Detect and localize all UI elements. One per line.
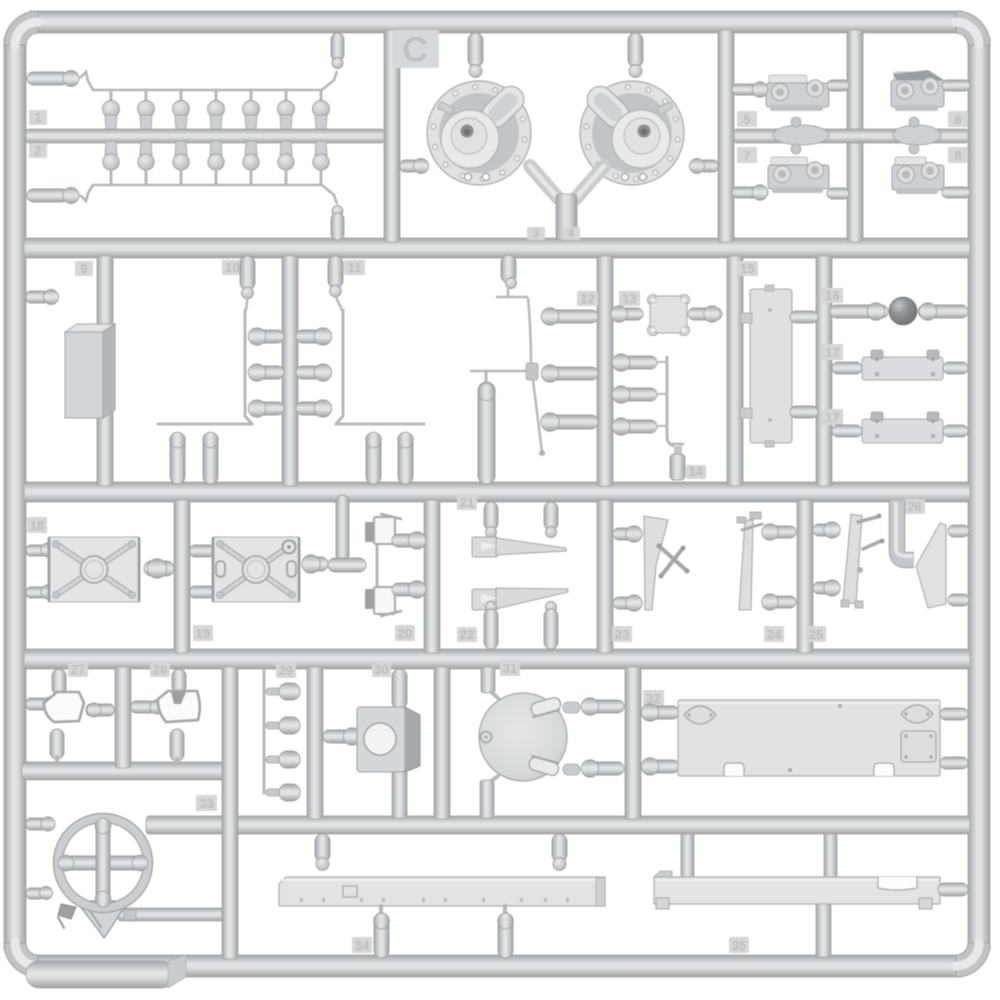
svg-text:20: 20	[398, 626, 412, 641]
svg-text:2: 2	[34, 143, 41, 158]
svg-text:12: 12	[580, 291, 594, 306]
svg-text:19: 19	[196, 626, 210, 641]
svg-text:24: 24	[767, 627, 782, 642]
svg-text:30: 30	[374, 662, 388, 677]
svg-text:7: 7	[743, 148, 750, 163]
svg-text:14: 14	[689, 464, 704, 479]
svg-text:15: 15	[740, 261, 754, 276]
svg-text:26: 26	[907, 499, 921, 514]
svg-text:5: 5	[743, 112, 750, 127]
svg-text:1: 1	[34, 110, 41, 125]
svg-text:C: C	[403, 31, 428, 69]
svg-text:6: 6	[954, 112, 961, 127]
svg-text:18: 18	[30, 518, 44, 533]
svg-text:35: 35	[732, 938, 746, 953]
svg-text:9: 9	[80, 261, 87, 276]
svg-text:4: 4	[568, 226, 575, 240]
svg-text:34: 34	[355, 938, 370, 953]
svg-text:25: 25	[809, 627, 823, 642]
svg-text:21: 21	[460, 495, 474, 510]
svg-text:17: 17	[825, 345, 839, 360]
svg-text:8: 8	[954, 148, 961, 163]
svg-text:27: 27	[71, 662, 85, 677]
svg-text:31: 31	[503, 661, 517, 676]
svg-text:17: 17	[825, 410, 839, 425]
svg-text:22: 22	[460, 627, 474, 642]
svg-text:11: 11	[348, 260, 362, 275]
svg-text:33: 33	[199, 796, 213, 811]
svg-text:16: 16	[825, 288, 839, 303]
svg-text:29: 29	[279, 663, 293, 678]
svg-text:28: 28	[153, 662, 167, 677]
svg-text:13: 13	[622, 291, 636, 306]
svg-text:3: 3	[533, 226, 540, 240]
svg-text:10: 10	[225, 260, 239, 275]
svg-text:23: 23	[615, 627, 629, 642]
